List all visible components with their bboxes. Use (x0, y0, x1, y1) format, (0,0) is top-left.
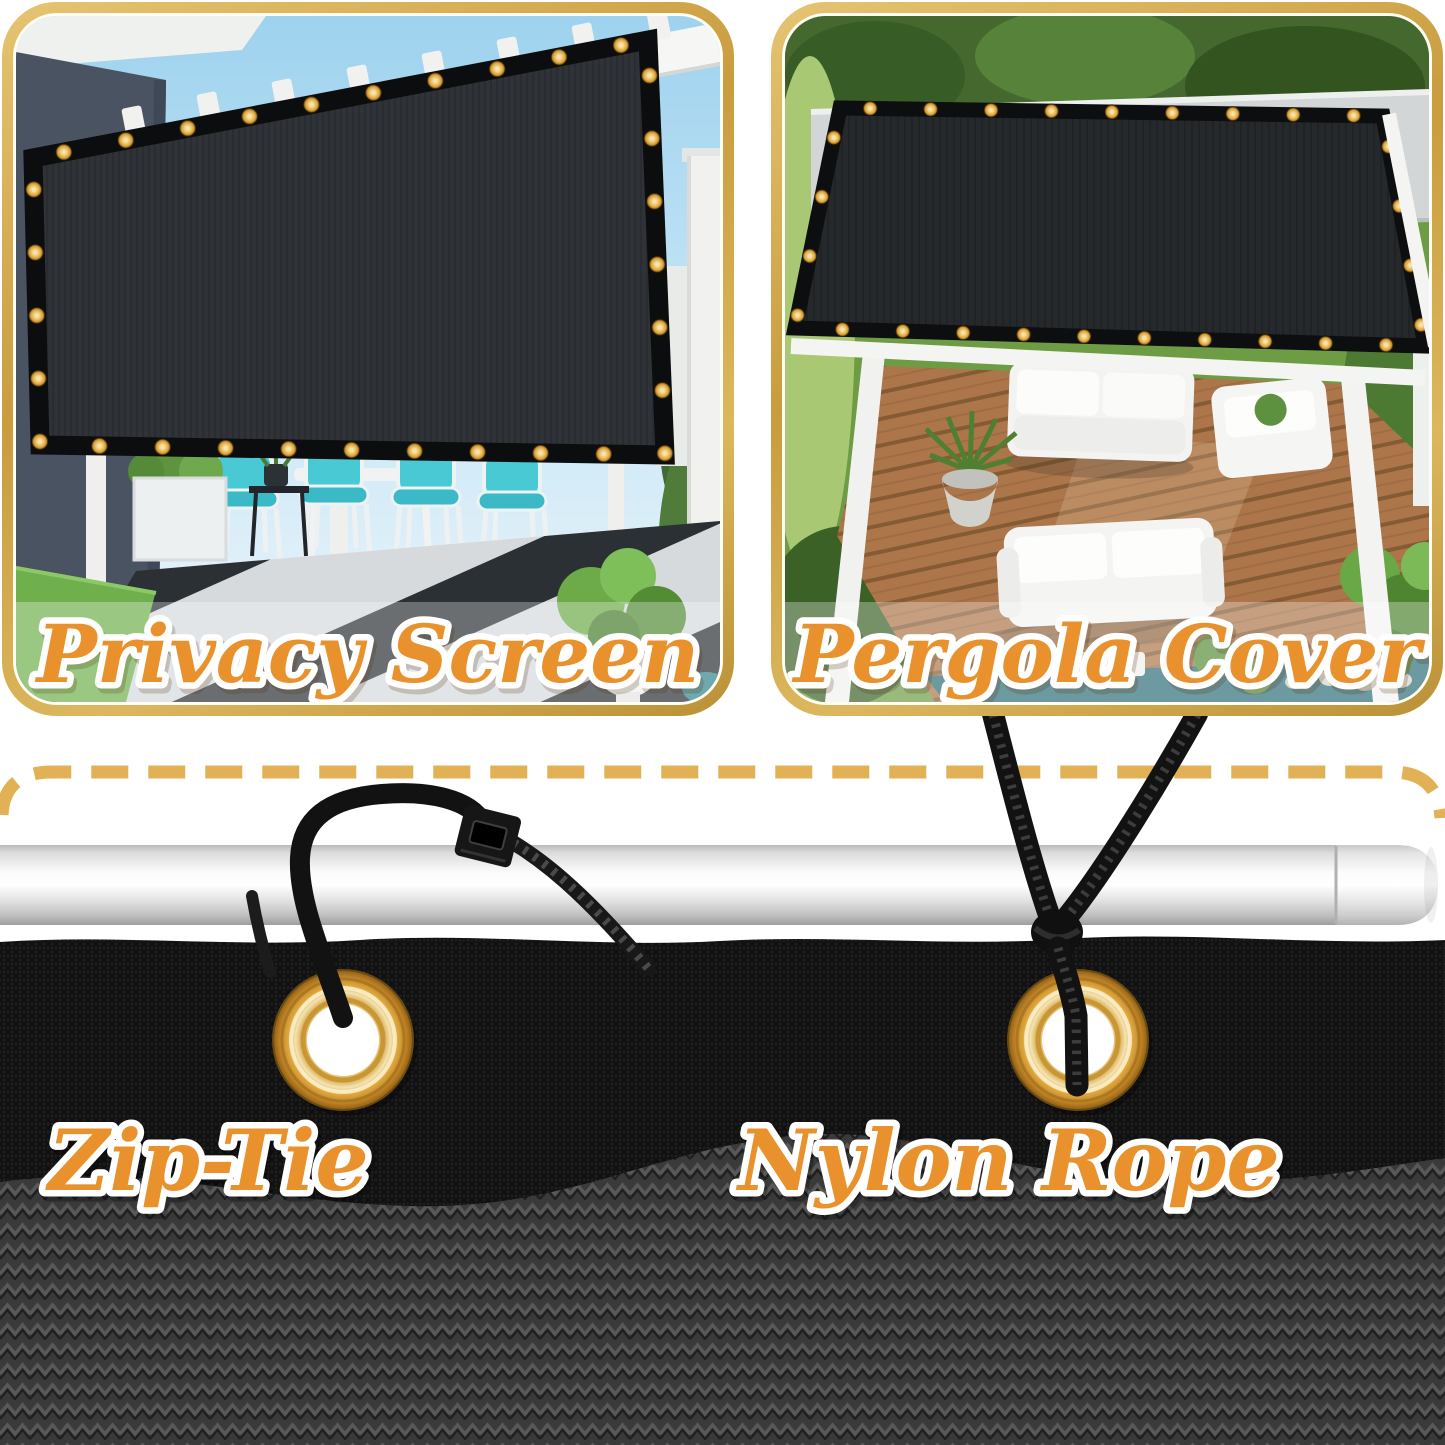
grommet-icon (1077, 329, 1091, 343)
grommet-icon (92, 438, 108, 454)
grommet-icon (657, 445, 673, 461)
zip-tie-label: Zip-Tie (45, 1111, 369, 1210)
grommet-icon (956, 326, 970, 340)
grommet-icon (1198, 333, 1212, 347)
grommet-icon (344, 442, 360, 458)
dashed-guide-line (2, 772, 1441, 818)
grommet-icon (1045, 104, 1059, 118)
grommet-icon (652, 319, 668, 335)
grommet-icon (1137, 331, 1151, 345)
grommet-icon (32, 434, 48, 450)
grommet-icon (815, 190, 829, 204)
grommet-icon (29, 308, 45, 324)
grommet-icon (155, 439, 171, 455)
grommet-icon (1286, 108, 1300, 122)
grommet-icon (642, 68, 658, 84)
grommet-icon (613, 37, 629, 53)
privacy-screen-label: Privacy Screen (35, 607, 700, 701)
grommet-icon (1226, 107, 1240, 121)
grommet-icon (1258, 334, 1272, 348)
grommet-icon (242, 108, 258, 124)
grommet-icon (407, 443, 423, 459)
grommet-icon (596, 446, 612, 462)
grommet-icon (835, 322, 849, 336)
grommet-icon (27, 245, 43, 261)
grommet-icon (1379, 338, 1393, 352)
pergola-cover-photo: Pergola Cover Pergola Cover (782, 13, 1432, 705)
grommet-icon (26, 182, 42, 198)
grommet-icon (984, 103, 998, 117)
outdoor-sofa (1003, 361, 1197, 482)
grommet-icon (281, 441, 297, 457)
grommet-icon (118, 132, 134, 148)
pergola-cover-label: Pergola Cover (792, 607, 1426, 701)
grommet-icon (218, 440, 234, 456)
grommet-icon (649, 256, 665, 272)
grommet-icon (1017, 328, 1031, 342)
panel-privacy-screen: Privacy Screen Privacy Screen (2, 2, 734, 716)
grommet-icon (654, 382, 670, 398)
grommet-icon (533, 445, 549, 461)
grommet-icon (551, 49, 567, 65)
grommet-icon (470, 444, 486, 460)
grommet-icon (1347, 109, 1361, 123)
grommet-icon (1165, 106, 1179, 120)
grommet-icon (427, 73, 443, 89)
nylon-rope-label: Nylon Rope (735, 1111, 1280, 1210)
grommet-icon (827, 131, 841, 145)
panel-pergola-cover: Pergola Cover Pergola Cover (771, 2, 1443, 716)
product-collage: Privacy Screen Privacy Screen (0, 0, 1445, 1445)
grommet-icon (489, 61, 505, 77)
grommet-icon (1105, 105, 1119, 119)
grommet-icon (896, 324, 910, 338)
grommet-icon (30, 371, 46, 387)
grommet-icon (1319, 336, 1333, 350)
grommet-icon (644, 131, 660, 147)
grommet-icon (180, 120, 196, 136)
pergola-cover-fabric (791, 101, 1429, 352)
mounting-pole (0, 845, 1438, 925)
grommet-icon (56, 144, 72, 160)
installation-detail: Zip-Tie Zip-Tie Nylon Rope Nylon Rope (0, 716, 1445, 1445)
grommet-icon (863, 101, 877, 115)
grommet-icon (791, 308, 805, 322)
grommet-icon (803, 249, 817, 263)
grommet-icon (304, 97, 320, 113)
grommet-icon (924, 102, 938, 116)
privacy-screen-photo: Privacy Screen Privacy Screen (13, 13, 723, 705)
grommet-icon (365, 85, 381, 101)
grommet-icon (647, 193, 663, 209)
outdoor-armchair (1210, 376, 1334, 480)
